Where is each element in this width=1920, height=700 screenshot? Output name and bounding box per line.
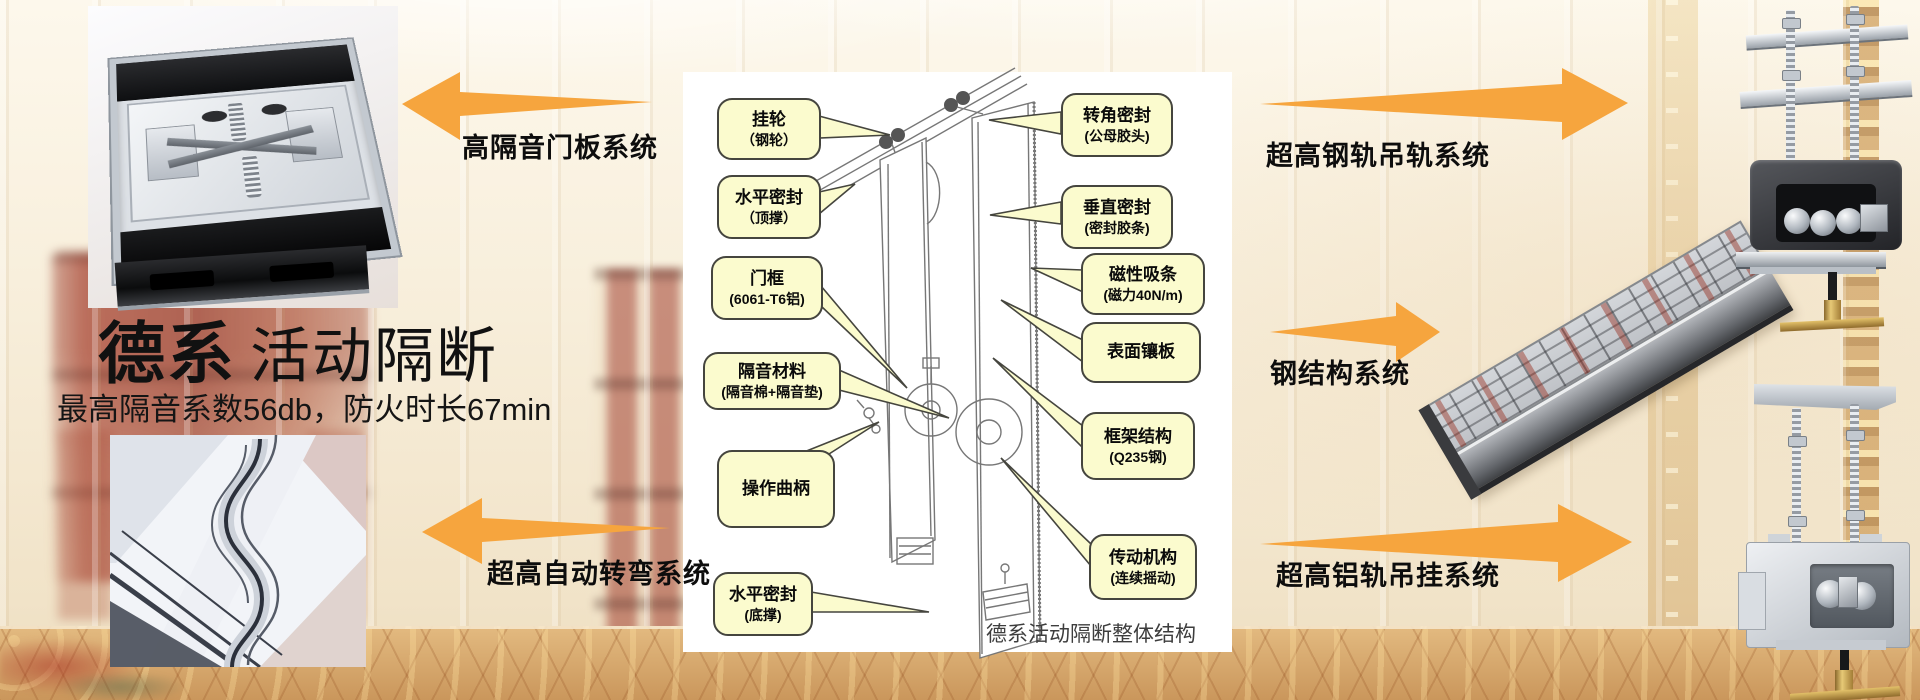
steel-plate <box>1740 80 1913 109</box>
diagram-label-surface-panel: 表面镶板 <box>1081 322 1201 383</box>
nut <box>1846 14 1865 25</box>
profile-flange <box>1738 572 1766 630</box>
label-line2: （顶撑） <box>741 209 797 227</box>
diagram-caption: 德系活动隔断整体结构 <box>986 618 1196 648</box>
profile-lip <box>1776 640 1886 650</box>
label-line1: 水平密封 <box>735 187 803 209</box>
diagram-label-magnetic-strip: 磁性吸条 (磁力40N/m) <box>1081 253 1205 315</box>
diagram-label-vertical-seal: 垂直密封 (密封胶条) <box>1061 185 1173 249</box>
photo-curved-track <box>110 435 366 667</box>
label-line1: 隔音材料 <box>738 361 806 383</box>
oval-hole <box>201 110 227 123</box>
arrow-shape-right <box>1260 68 1628 140</box>
label-line1: 操作曲柄 <box>742 478 810 500</box>
diagram-label-corner-seal: 转角密封 (公母胶头) <box>1061 93 1173 157</box>
roller-wheel <box>1810 210 1836 236</box>
roller-bracket <box>1860 204 1888 232</box>
nut <box>1782 70 1801 81</box>
clamp-bracket-left <box>145 125 199 182</box>
spring-top <box>228 102 247 142</box>
diagram-label-frame-structure: 框架结构 (Q235钢) <box>1081 412 1195 480</box>
label-line2: （钢轮） <box>741 131 797 149</box>
label-line1: 传动机构 <box>1109 547 1177 569</box>
diagram-label-horizontal-seal-top: 水平密封 （顶撑） <box>717 175 821 239</box>
diagram-label-horizontal-seal-bottom: 水平密封 (底撑) <box>713 572 813 636</box>
arrow-steel-rail-system <box>1260 66 1630 144</box>
label-line1: 磁性吸条 <box>1109 264 1177 286</box>
roller-carrier <box>1838 576 1858 608</box>
label-line2: (公母胶头) <box>1084 127 1149 145</box>
threaded-rod <box>1786 10 1795 164</box>
pendant-rod <box>1828 272 1837 302</box>
diagram-label-door-frame: 门框 (6061-T6铝) <box>711 256 823 320</box>
oval-hole <box>261 103 288 116</box>
label-line1: 挂轮 <box>752 109 786 131</box>
roller-wheel <box>1784 208 1810 234</box>
nut <box>1846 66 1865 77</box>
label-aluminum-rail-system: 超高铝轨吊挂系统 <box>1276 554 1500 593</box>
photo-aluminum-rail-hanger <box>1740 378 1920 700</box>
title-brand: 德系 <box>98 317 236 392</box>
label-steel-rail-system: 超高钢轨吊轨系统 <box>1266 134 1490 173</box>
threaded-rod <box>1850 404 1859 544</box>
nut <box>1782 18 1801 29</box>
label-line2: (隔音棉+隔音垫) <box>721 383 823 401</box>
spring-bottom <box>242 155 262 198</box>
structure-diagram-panel: 挂轮 （钢轮） 水平密封 （顶撑） 门框 (6061-T6铝) 隔音材料 (隔音… <box>683 72 1232 652</box>
diagram-label-sound-insulation: 隔音材料 (隔音棉+隔音垫) <box>703 352 841 410</box>
label-line1: 表面镶板 <box>1107 341 1175 363</box>
label-line1: 转角密封 <box>1083 105 1151 127</box>
top-channel-bracket <box>1754 384 1896 410</box>
title-product: 活动隔断 <box>250 323 498 390</box>
diagram-label-operating-crank: 操作曲柄 <box>717 450 835 528</box>
label-line2: (连续摇动) <box>1110 569 1175 587</box>
nut <box>1788 516 1807 527</box>
label-line1: 门框 <box>750 268 784 290</box>
carpet-pattern-teal <box>56 672 186 700</box>
label-line1: 水平密封 <box>729 584 797 606</box>
label-steel-structure-system: 钢结构系统 <box>1270 352 1410 391</box>
label-line1: 框架结构 <box>1104 426 1172 448</box>
label-line2: (底撑) <box>744 606 781 624</box>
steel-plate <box>1746 24 1909 50</box>
nut <box>1788 436 1807 447</box>
photo-steel-rail-trolley <box>1740 4 1920 326</box>
base-slot <box>269 262 334 282</box>
diagram-label-hanging-wheel: 挂轮 （钢轮） <box>717 98 821 160</box>
label-line2: (磁力40N/m) <box>1103 286 1182 304</box>
mechanism-tray-wrap <box>102 14 384 264</box>
nut <box>1846 430 1865 441</box>
page-title: 德系活动隔断 <box>98 300 498 397</box>
infographic-stage: 德系活动隔断 最高隔音系数56db，防火时长67min <box>0 0 1920 700</box>
roller-wheel <box>1836 208 1862 234</box>
tray-inner-panel <box>127 85 370 222</box>
threaded-rod <box>1850 6 1859 164</box>
pendant-rod <box>1840 650 1849 672</box>
page-subtitle: 最高隔音系数56db，防火时长67min <box>57 384 551 429</box>
nut <box>1846 510 1865 521</box>
label-line2: (6061-T6铝) <box>729 290 804 308</box>
base-slot <box>150 270 215 290</box>
photo-door-panel-mechanism <box>88 6 398 308</box>
rail-base-lower <box>1750 267 1876 274</box>
label-door-panel-system: 高隔音门板系统 <box>462 126 658 165</box>
label-line1: 垂直密封 <box>1083 197 1151 219</box>
label-line2: (Q235钢) <box>1109 448 1167 466</box>
diagram-label-transmission: 传动机构 (连续摇动) <box>1089 534 1197 600</box>
label-line2: (密封胶条) <box>1084 219 1149 237</box>
label-auto-turn-system: 超高自动转弯系统 <box>487 552 711 591</box>
